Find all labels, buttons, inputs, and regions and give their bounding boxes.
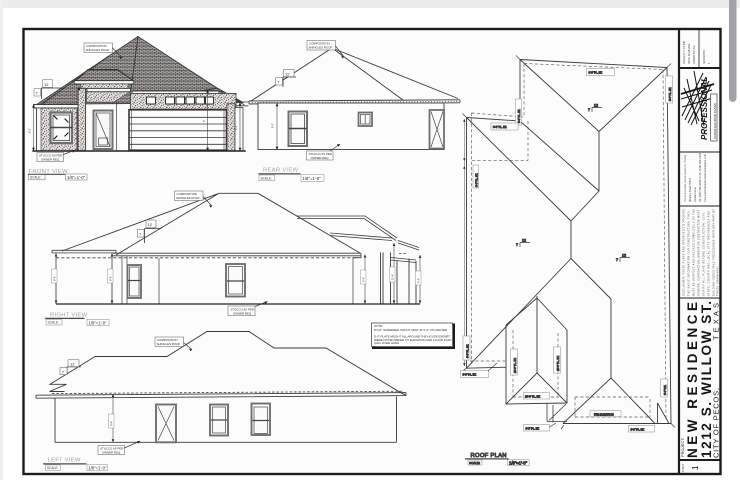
svg-text:SCALE:: SCALE: [469, 461, 480, 465]
svg-text:1: 1 [691, 465, 700, 470]
svg-text:8'-0" PL. HT.: 8'-0" PL. HT. [526, 427, 540, 430]
svg-text:MUST BE VERIFIED AND CHECKED C: MUST BE VERIFIED AND CHECKED COMPLETELY … [693, 209, 696, 296]
svg-text:8'-0" PL. HT.: 8'-0" PL. HT. [463, 374, 477, 377]
svg-text:OWNER REQ.: OWNER REQ. [233, 311, 252, 315]
svg-text:12: 12 [594, 104, 598, 108]
svg-text:12: 12 [70, 362, 75, 367]
svg-text:7: 7 [616, 258, 618, 262]
svg-text:19'-0" PL. HT.: 19'-0" PL. HT. [525, 395, 541, 398]
svg-text:RIGHT VIEW: RIGHT VIEW [50, 312, 88, 318]
svg-text:19'-0" PL. HT.: 19'-0" PL. HT. [557, 355, 560, 371]
svg-text:8'-0" PL. HT.: 8'-0" PL. HT. [467, 344, 470, 358]
svg-text:Professional Construction Plan: Professional Construction Plans [684, 154, 687, 202]
svg-text:SHINGLES ROOF: SHINGLES ROOF [176, 196, 200, 200]
svg-text:12: 12 [622, 254, 626, 258]
svg-text:SCALE:: SCALE: [48, 321, 59, 325]
svg-text:SCALE:: SCALE: [30, 176, 41, 180]
svg-text:www.professionalconstructionpl: www.professionalconstructionplans.com [704, 154, 707, 202]
svg-text:11'-4": 11'-4" [392, 274, 395, 280]
svg-text:12: 12 [44, 82, 49, 87]
svg-text:8'-0" PL. HT.: 8'-0" PL. HT. [669, 87, 672, 101]
svg-text:PROJECT #: 21-136: PROJECT #: 21-136 [683, 41, 686, 64]
svg-text:THESE DRAWINGS.: THESE DRAWINGS. [717, 266, 720, 296]
svg-text:7: 7 [516, 243, 518, 247]
svg-text:19'-0" PL. HT.: 19'-0" PL. HT. [514, 357, 517, 373]
svg-text:CALL OVER HANG: CALL OVER HANG [374, 341, 400, 345]
svg-text:8"x14" SCREENED SOFFIT VENT AT: 8"x14" SCREENED SOFFIT VENT AT 6'-0" ON … [374, 328, 447, 332]
svg-text:9'-4": 9'-4" [111, 421, 114, 426]
svg-text:8'-4": 8'-4" [110, 276, 113, 281]
svg-text:SHEET: SHEET [682, 463, 685, 472]
svg-text:CITY OF PECOS,: CITY OF PECOS, [712, 388, 721, 458]
svg-text:BUILDING CODES TAKE PRECEDENCE: BUILDING CODES TAKE PRECEDENCE OVER ANY … [713, 209, 716, 296]
svg-text:8'-0" PL. HT.: 8'-0" PL. HT. [493, 126, 507, 129]
svg-text:12: 12 [522, 239, 526, 243]
svg-text:9'-4": 9'-4" [418, 278, 421, 283]
svg-text:8'-0": 8'-0" [29, 128, 32, 133]
svg-text:1/8"=1'-0": 1/8"=1'-0" [509, 461, 528, 466]
svg-text:GENERAL CONTRACTOR, OWNER OR C: GENERAL CONTRACTOR, OWNER OR CONTRACTOR … [698, 210, 701, 296]
svg-text:SHINGLES ROOF: SHINGLES ROOF [309, 46, 333, 50]
svg-text:SCALE:: SCALE: [47, 466, 58, 470]
svg-text:1/8"=1'-0": 1/8"=1'-0" [88, 466, 107, 471]
svg-text:DATE: 10-26-2021: DATE: 10-26-2021 [688, 43, 691, 64]
svg-text:1/8"=1'-0": 1/8"=1'-0" [67, 175, 86, 180]
svg-text:8'-4": 8'-4" [54, 276, 57, 281]
svg-text:STATE, COUNTY AND LOCAL CITY O: STATE, COUNTY AND LOCAL CITY ORDINANCES … [708, 211, 711, 296]
svg-text:DRAWN BY: P.R.: DRAWN BY: P.R. [693, 45, 696, 64]
svg-text:7: 7 [588, 108, 590, 112]
svg-text:PER ELEVATION: PER ELEVATION [594, 413, 614, 416]
svg-text:SHINGLES ROOF: SHINGLES ROOF [157, 342, 181, 346]
svg-text:SHINGLES ROOF: SHINGLES ROOF [86, 48, 110, 52]
svg-text:Ph. (956) 580-2699 or Ph. (516: Ph. (956) 580-2699 or Ph. (516) 404-1306 [699, 152, 702, 202]
svg-text:8'-0": 8'-0" [235, 125, 238, 130]
svg-text:Contact us at: Contact us at [694, 187, 697, 202]
svg-text:8'-0": 8'-0" [272, 123, 275, 128]
svg-text:Mission, Texas 78572: Mission, Texas 78572 [689, 177, 692, 202]
svg-text:OWNER REQ.: OWNER REQ. [41, 158, 60, 162]
svg-text:DISCLAIMER: THESE PLANS ARE IN: DISCLAIMER: THESE PLANS ARE INTENDED TO … [683, 209, 686, 296]
svg-text:REAR VIEW: REAR VIEW [263, 168, 298, 174]
svg-text:LEFT VIEW: LEFT VIEW [48, 458, 81, 464]
svg-text:1/8"=1'-0": 1/8"=1'-0" [303, 176, 322, 181]
svg-text:8'-0" PL. HT.: 8'-0" PL. HT. [476, 173, 479, 187]
svg-text:1.: 1. [708, 62, 711, 64]
svg-text:OWNER REQ.: OWNER REQ. [311, 156, 330, 160]
svg-text:12: 12 [285, 71, 290, 76]
svg-text:9'-4": 9'-4" [363, 277, 366, 282]
svg-text:8'-0" PL. HT.: 8'-0" PL. HT. [518, 109, 521, 123]
svg-text:REVISIONS:: REVISIONS: [703, 49, 706, 64]
svg-text:12: 12 [148, 222, 153, 227]
svg-text:SCALE:: SCALE: [261, 176, 272, 180]
svg-text:8'-0" P.H.: 8'-0" P.H. [664, 384, 667, 395]
svg-text:8'-0" PL. HT.: 8'-0" PL. HT. [589, 72, 603, 75]
svg-text:VERIFY ALL PLANS BEFORE CONSTR: VERIFY ALL PLANS BEFORE CONSTRUCTION. CI… [703, 212, 706, 296]
svg-text:PROFESSIONAL: PROFESSIONAL [700, 77, 709, 140]
svg-text:THE BASIC INFORMATION FOR CONS: THE BASIC INFORMATION FOR CONSTRUCTION. … [688, 211, 691, 296]
svg-text:CONSTRUCTION PLANS: CONSTRUCTION PLANS [713, 103, 717, 139]
svg-text:8'-0" PL. HT.: 8'-0" PL. HT. [631, 428, 645, 431]
svg-text:OWNER REQ.: OWNER REQ. [102, 451, 121, 455]
svg-text:1/8"=1'-0": 1/8"=1'-0" [89, 320, 108, 325]
